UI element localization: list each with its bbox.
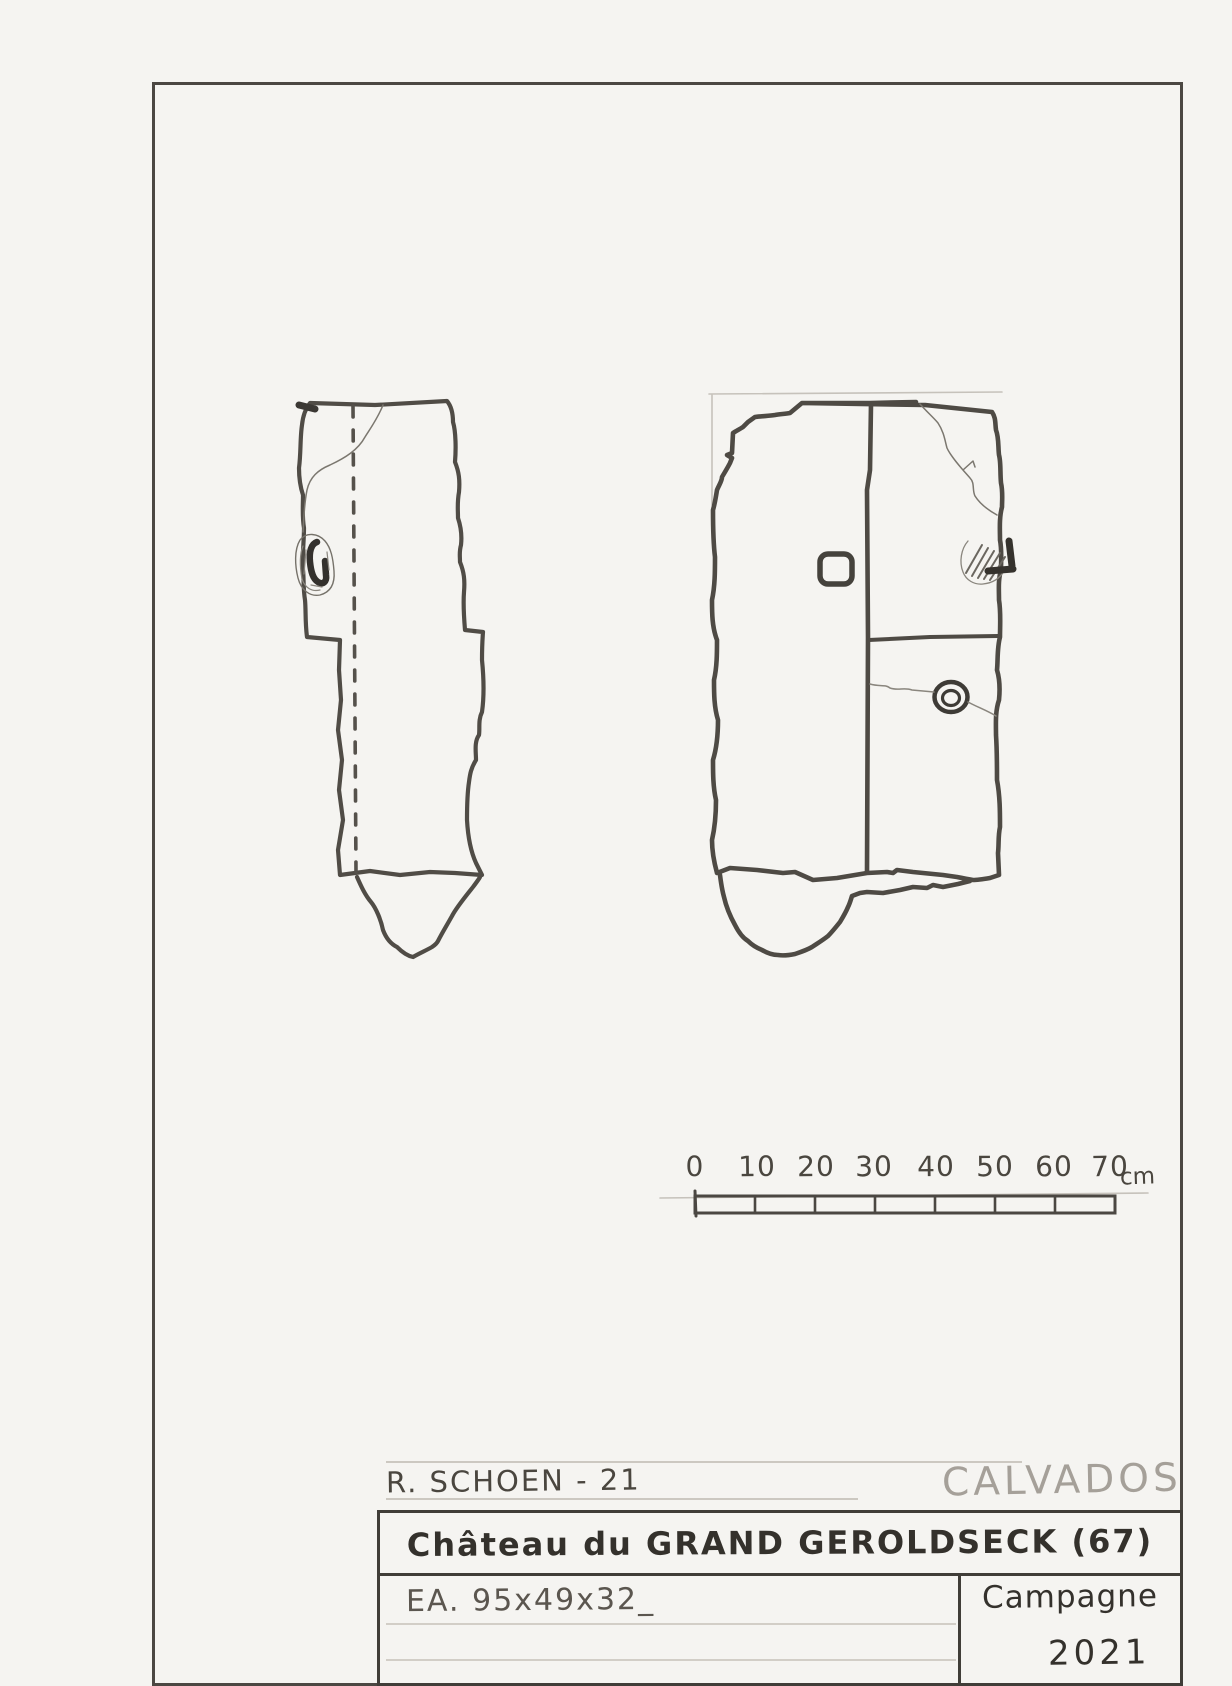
campaign-year: 2021 (1048, 1632, 1151, 1673)
scale-label-30: 30 (842, 1150, 906, 1184)
scanned-drawing-sheet: { "sheet": { "author_credit": "R. SCHOEN… (0, 0, 1232, 1686)
right-fragment-ring-hole (935, 682, 968, 712)
scale-label-20: 20 (784, 1150, 848, 1184)
scale-label-50: 50 (963, 1150, 1027, 1184)
scale-label-40: 40 (904, 1150, 968, 1184)
right-fragment-square-socket (820, 554, 852, 584)
left-fragment-crack (303, 405, 383, 532)
pencil-drawings (0, 0, 1232, 1686)
sheet-title: Château du GRAND GEROLDSECK (67) (380, 1511, 1180, 1575)
scale-label-60: 60 (1022, 1150, 1086, 1184)
title-block-horizontal-divider (380, 1573, 1180, 1576)
title-block-faint-line-2 (386, 1659, 956, 1661)
right-fragment-outline (712, 402, 1002, 880)
scale-bar-ticks (755, 1196, 1055, 1213)
right-fragment-broken-tip (720, 875, 970, 955)
scale-label-0: 0 (663, 1150, 727, 1184)
campaign-label: Campagne (982, 1578, 1158, 1616)
left-fragment-corner-tick (299, 405, 315, 409)
guide-line-top (386, 1461, 1022, 1463)
title-block-vertical-divider (958, 1576, 961, 1683)
scale-bar (660, 1191, 1148, 1216)
right-fragment-crack-top-right (920, 404, 997, 515)
scale-label-10: 10 (725, 1150, 789, 1184)
scale-bar-zero-tick (695, 1191, 696, 1216)
scale-unit-label: cm (1120, 1163, 1156, 1190)
title-block-faint-line-1 (386, 1623, 956, 1625)
right-fragment (709, 392, 1013, 955)
right-fragment-hatched-mark (961, 541, 1013, 584)
artifact-reference: EA. 95x49x32_ (406, 1582, 655, 1619)
left-fragment-outline (299, 401, 484, 875)
left-fragment (296, 401, 484, 957)
author-credit: R. SCHOEN - 21 (386, 1462, 641, 1499)
title-block: Château du GRAND GEROLDSECK (67) EA. 95x… (377, 1510, 1183, 1686)
left-fragment-axis-dashed-line (353, 406, 356, 873)
right-fragment-horizontal-joint (869, 636, 998, 640)
region-label: CALVADOS (942, 1455, 1183, 1505)
left-fragment-broken-tip (357, 877, 480, 957)
scale-bar-body (695, 1196, 1115, 1213)
right-fragment-vertical-joint (867, 404, 871, 871)
